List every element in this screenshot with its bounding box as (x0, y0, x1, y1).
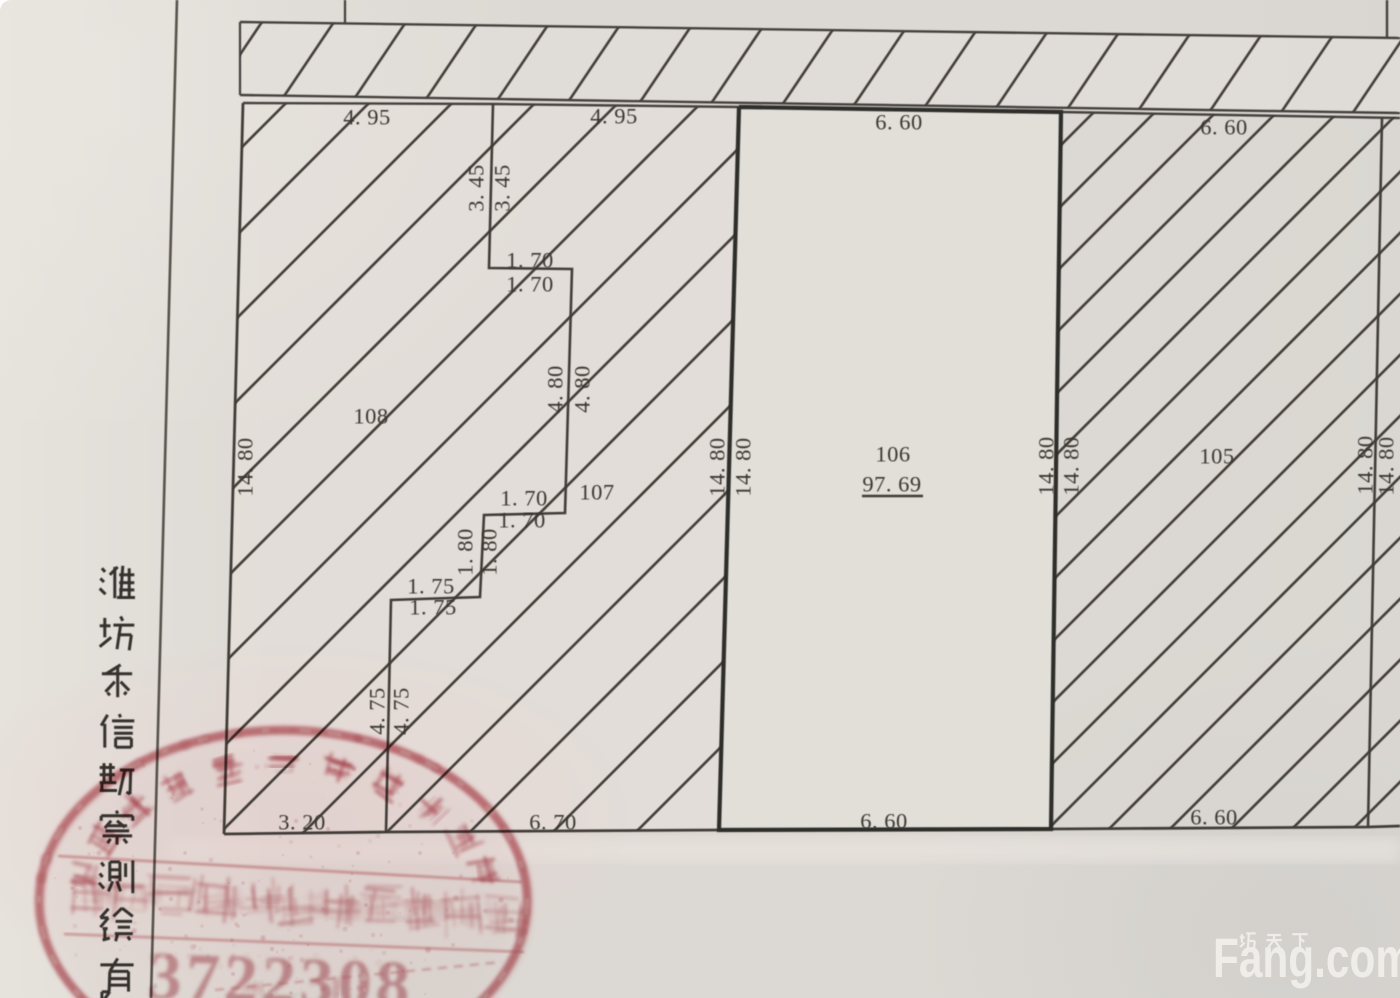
svg-text:6. 60: 6. 60 (875, 110, 923, 135)
svg-text:3722308: 3722308 (146, 937, 415, 998)
svg-text:14. 80: 14. 80 (731, 437, 756, 496)
svg-text:6. 60: 6. 60 (1200, 115, 1248, 140)
svg-text:1. 80: 1. 80 (453, 528, 478, 576)
svg-text:6. 70: 6. 70 (529, 810, 577, 835)
svg-text:14. 80: 14. 80 (1034, 436, 1059, 495)
svg-text:4. 75: 4. 75 (389, 687, 414, 735)
svg-text:107: 107 (579, 480, 614, 505)
svg-text:6. 60: 6. 60 (860, 809, 908, 834)
svg-text:4. 95: 4. 95 (343, 105, 391, 130)
svg-text:4. 95: 4. 95 (590, 104, 638, 129)
svg-text:108: 108 (353, 404, 388, 429)
svg-text:14. 80: 14. 80 (233, 437, 258, 496)
svg-text:97. 69: 97. 69 (862, 472, 921, 497)
svg-text:1. 70: 1. 70 (498, 508, 546, 533)
svg-text:1. 75: 1. 75 (409, 595, 457, 620)
svg-text:105: 105 (1199, 444, 1234, 469)
svg-text:14. 80: 14. 80 (1059, 436, 1084, 495)
svg-text:14. 80: 14. 80 (1374, 436, 1399, 495)
svg-text:4. 75: 4. 75 (365, 687, 390, 735)
svg-text:106: 106 (875, 442, 910, 467)
svg-text:4. 80: 4. 80 (543, 365, 568, 413)
svg-text:14. 80: 14. 80 (705, 437, 730, 496)
svg-text:1. 80: 1. 80 (477, 528, 502, 576)
svg-text:4. 80: 4. 80 (570, 365, 595, 413)
svg-text:3. 45: 3. 45 (490, 164, 515, 212)
svg-text:6. 60: 6. 60 (1190, 805, 1238, 830)
svg-text:3. 45: 3. 45 (464, 164, 489, 212)
svg-text:1. 70: 1. 70 (506, 248, 554, 273)
svg-text:1. 70: 1. 70 (506, 272, 554, 297)
